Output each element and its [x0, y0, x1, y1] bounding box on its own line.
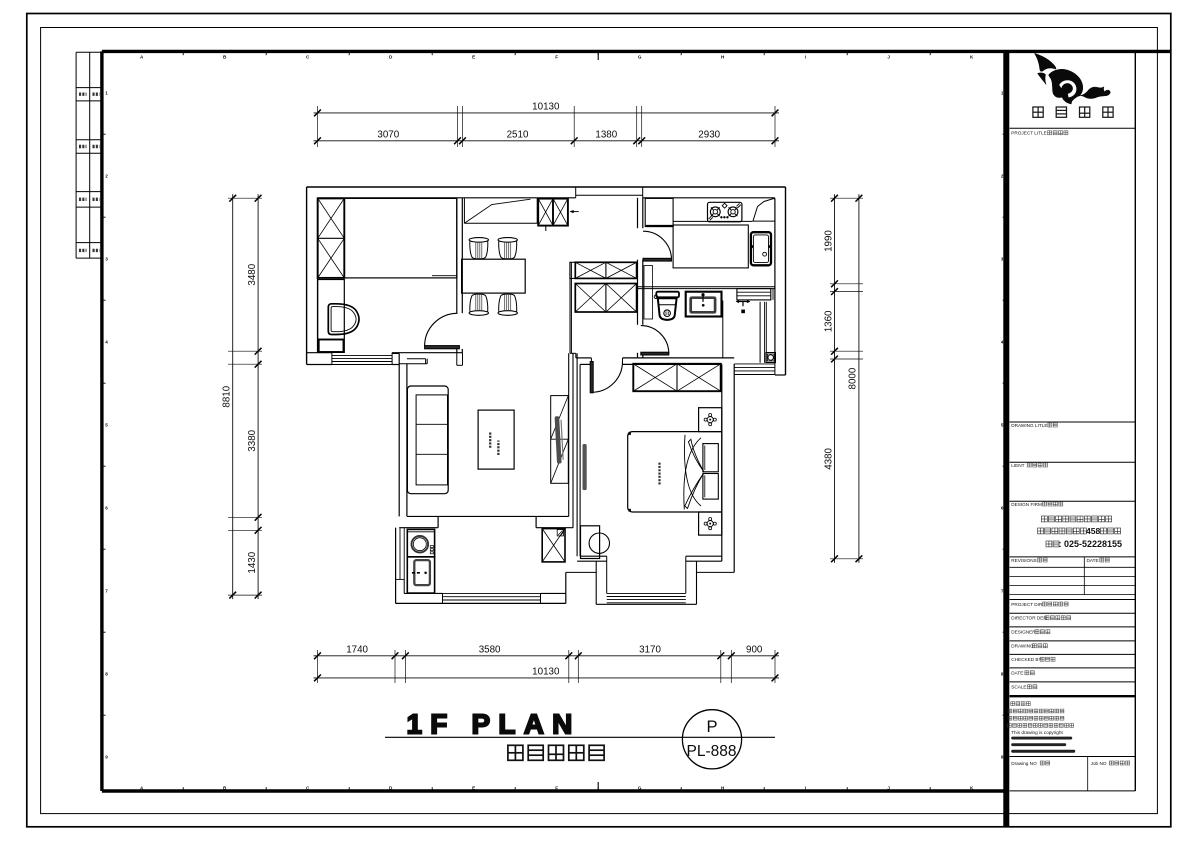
svg-text:1: 1: [1001, 91, 1004, 96]
svg-text:Job NO: Job NO: [1091, 761, 1107, 766]
svg-text:1380: 1380: [595, 130, 617, 141]
svg-text:E: E: [472, 55, 475, 60]
svg-text:PROJECT LITLE: PROJECT LITLE: [1011, 131, 1047, 136]
svg-text:458: 458: [1086, 526, 1101, 536]
svg-text:3580: 3580: [479, 645, 501, 656]
svg-text:1740: 1740: [346, 645, 368, 656]
svg-text:1990: 1990: [823, 230, 834, 252]
svg-text:DESIGNER: DESIGNER: [1011, 630, 1036, 635]
svg-text:10130: 10130: [532, 667, 560, 678]
svg-text:DATE: DATE: [1087, 558, 1099, 563]
svg-text:G: G: [638, 786, 642, 791]
svg-text:1F PLAN: 1F PLAN: [407, 709, 581, 740]
svg-text:8810: 8810: [222, 385, 233, 407]
svg-text:8: 8: [1001, 672, 1004, 677]
svg-text:6: 6: [105, 506, 108, 511]
svg-text:DIRECTOR DER: DIRECTOR DER: [1011, 616, 1047, 621]
svg-text:4380: 4380: [823, 447, 834, 469]
svg-text:2510: 2510: [507, 130, 529, 141]
svg-text:P: P: [706, 718, 717, 736]
svg-text:2930: 2930: [698, 130, 720, 141]
svg-text:DRAWING LITLE: DRAWING LITLE: [1011, 423, 1047, 428]
svg-text:3380: 3380: [247, 429, 258, 451]
svg-text:9: 9: [105, 755, 108, 760]
svg-text:DATE: DATE: [1011, 671, 1023, 676]
svg-text:DRAWING: DRAWING: [1011, 644, 1034, 649]
svg-text:SCALE: SCALE: [1011, 685, 1026, 690]
svg-text:PL-888: PL-888: [687, 743, 737, 760]
svg-text:3070: 3070: [377, 130, 399, 141]
svg-text:J: J: [887, 786, 890, 791]
svg-text:E: E: [472, 786, 475, 791]
svg-text:1: 1: [105, 91, 108, 96]
svg-text:G: G: [638, 55, 642, 60]
svg-text:4: 4: [105, 340, 108, 345]
svg-text:1430: 1430: [247, 551, 258, 573]
svg-text:This drawing is copyright: This drawing is copyright: [1011, 730, 1063, 735]
svg-text:F: F: [555, 55, 558, 60]
svg-text:CHECKED BY: CHECKED BY: [1011, 657, 1042, 662]
svg-text:4: 4: [1001, 340, 1004, 345]
svg-text:2: 2: [1001, 174, 1004, 179]
svg-text:10130: 10130: [532, 102, 560, 113]
svg-text:6: 6: [1001, 506, 1004, 511]
svg-text:7: 7: [1001, 589, 1004, 594]
svg-text:I: I: [805, 55, 806, 60]
svg-text:PROJECT DIR: PROJECT DIR: [1011, 602, 1043, 607]
svg-text:DESIGN FIRM: DESIGN FIRM: [1011, 502, 1042, 507]
svg-text:1360: 1360: [823, 310, 834, 332]
svg-text:8000: 8000: [848, 367, 859, 389]
svg-text:REVISIONS: REVISIONS: [1011, 558, 1037, 563]
svg-text:: 025-52228155: : 025-52228155: [1059, 539, 1123, 549]
svg-text:8: 8: [105, 672, 108, 677]
svg-text:J: J: [887, 55, 890, 60]
svg-text:3170: 3170: [639, 645, 661, 656]
svg-text:LIENT: LIENT: [1011, 463, 1024, 468]
svg-text:I: I: [805, 786, 806, 791]
svg-text:3480: 3480: [247, 263, 258, 285]
svg-text:900: 900: [746, 645, 763, 656]
svg-text:5: 5: [105, 423, 108, 428]
svg-text:7: 7: [105, 589, 108, 594]
svg-text:2: 2: [105, 174, 108, 179]
svg-text:3: 3: [1001, 257, 1004, 262]
svg-text:5: 5: [1001, 423, 1004, 428]
svg-text:9: 9: [1001, 755, 1004, 760]
svg-text:F: F: [555, 786, 558, 791]
svg-text:Drawing NO: Drawing NO: [1011, 761, 1037, 766]
svg-text:3: 3: [105, 257, 108, 262]
